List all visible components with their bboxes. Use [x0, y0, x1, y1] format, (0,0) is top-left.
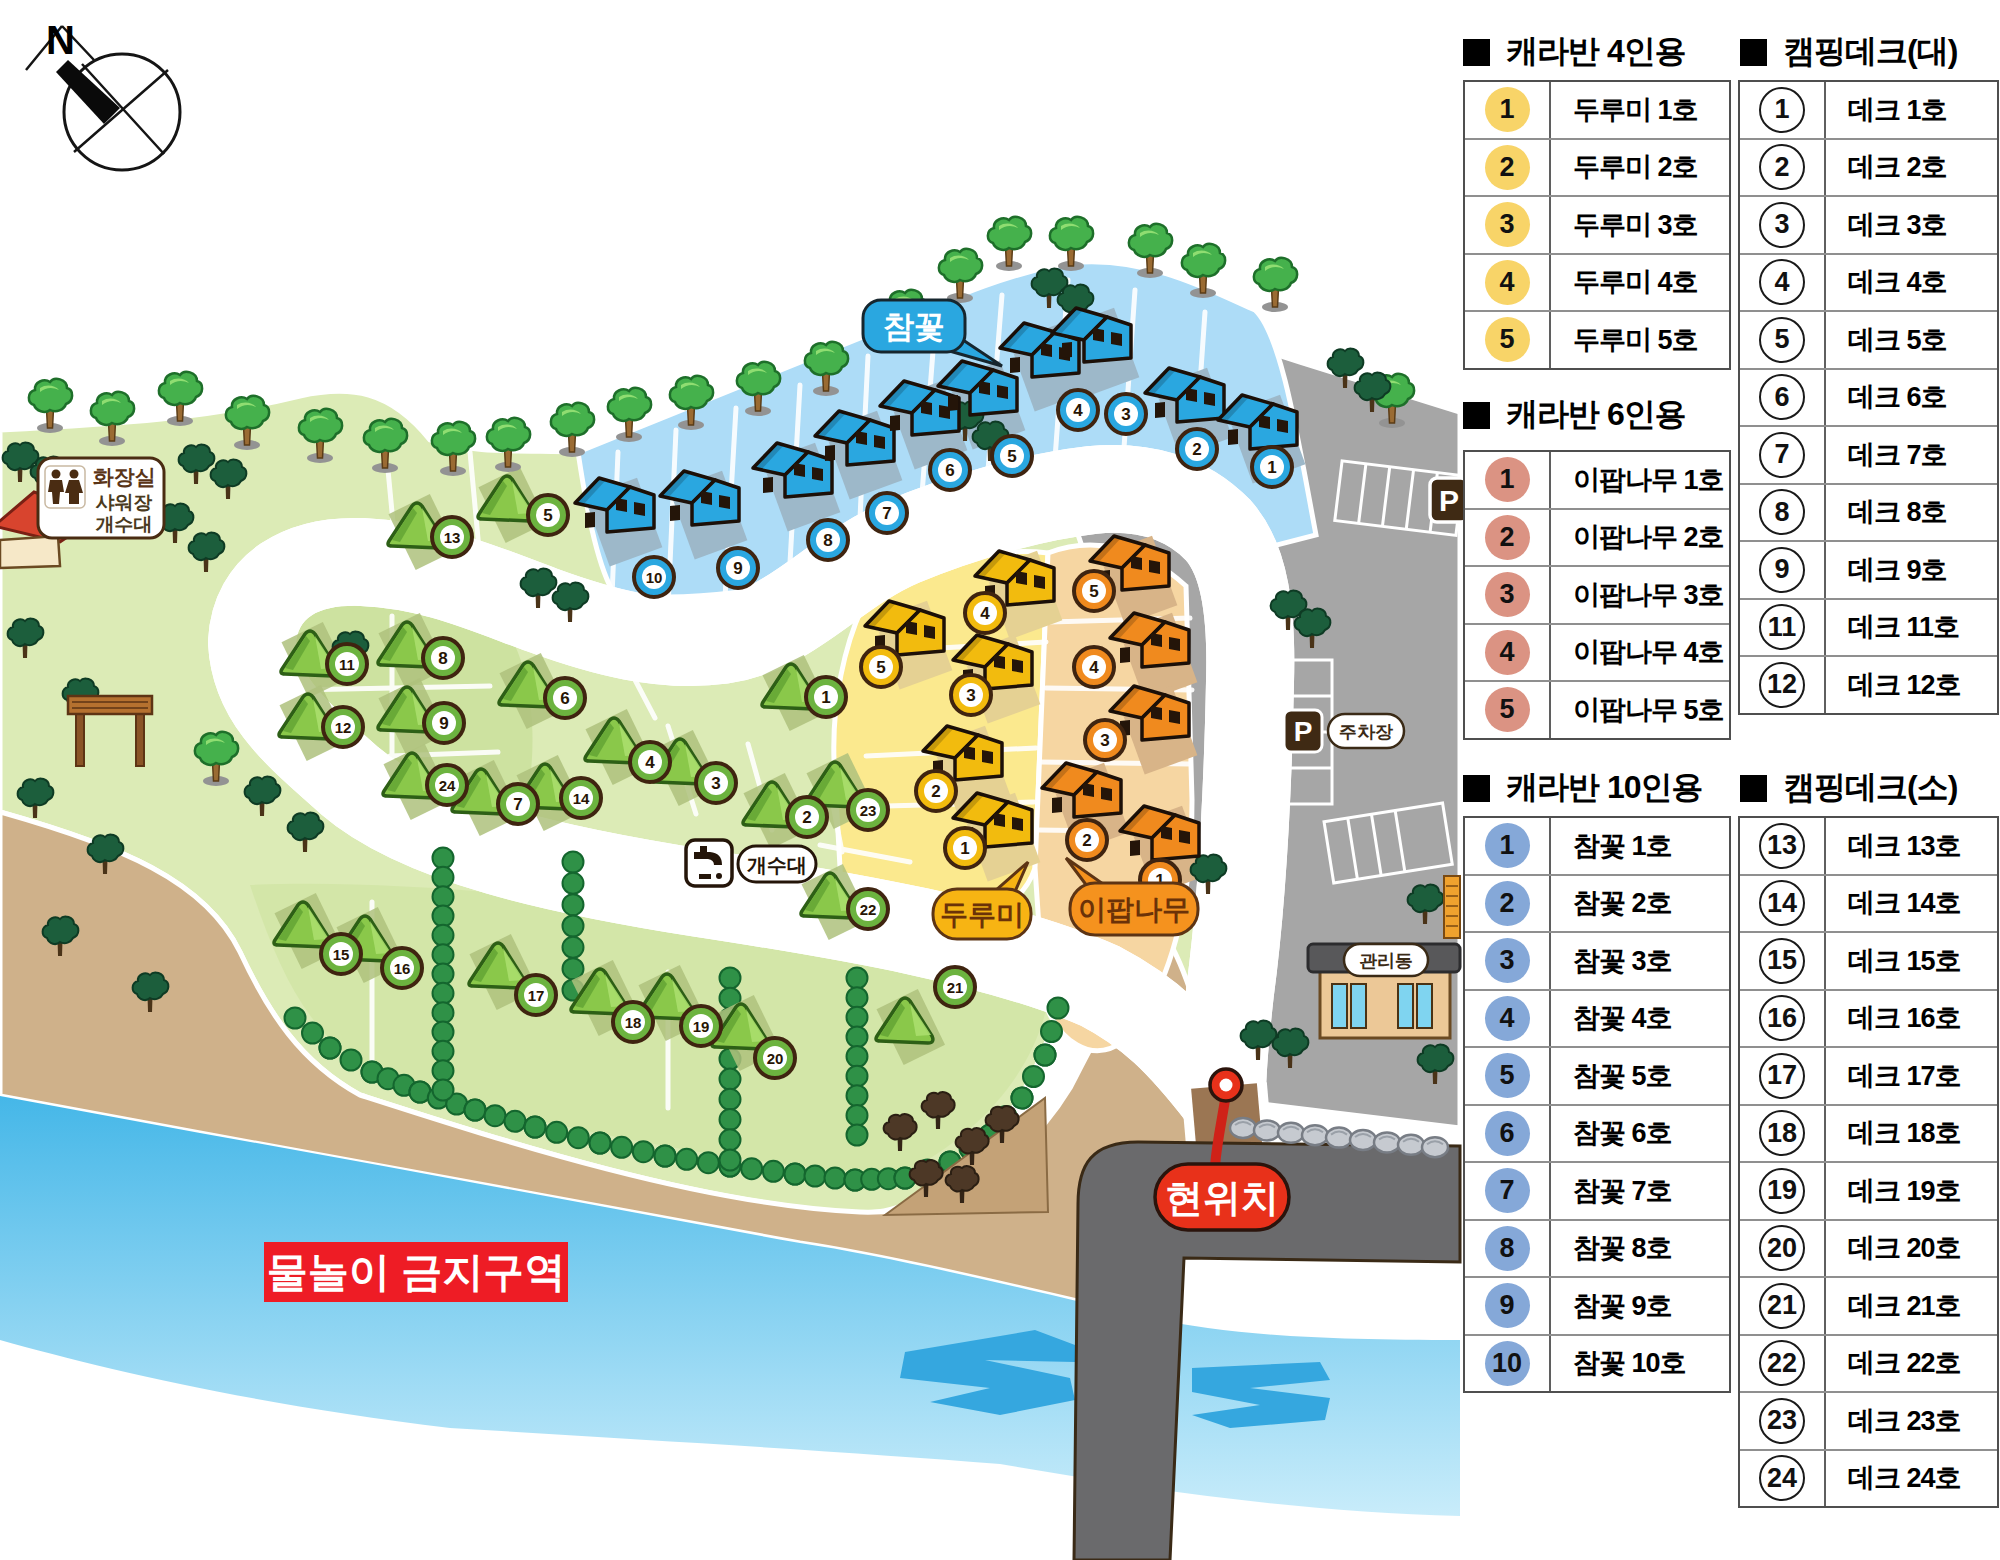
- site-marker-green-13: 13: [432, 517, 472, 557]
- hedge-bush-icon: [341, 1050, 362, 1071]
- hedge-bush-icon: [720, 1069, 741, 1090]
- site-marker-orange-3: 3: [1085, 720, 1125, 760]
- svg-text:9: 9: [439, 714, 448, 733]
- site-marker-green-22: 22: [848, 889, 888, 929]
- hedge-bush-icon: [805, 1166, 826, 1187]
- hedge-bush-icon: [720, 1089, 741, 1110]
- svg-text:4: 4: [1073, 401, 1083, 420]
- map-canvas: 화장실 샤워장 개수대 관리동: [0, 0, 2000, 1560]
- hedge-bush-icon: [847, 1007, 868, 1028]
- svg-text:18: 18: [625, 1014, 642, 1031]
- zone-label-yellow: 두루미: [940, 899, 1024, 930]
- compass-north-label: N: [46, 18, 75, 62]
- svg-text:21: 21: [947, 979, 964, 996]
- svg-text:22: 22: [860, 901, 877, 918]
- hedge-bush-icon: [763, 1161, 784, 1182]
- site-marker-orange-5: 5: [1074, 571, 1114, 611]
- svg-text:5: 5: [1007, 447, 1016, 466]
- site-marker-blue-5: 5: [992, 436, 1032, 476]
- rock-icon: [1326, 1128, 1352, 1148]
- no-swim-zone: 물놀이 금지구역: [264, 1242, 568, 1302]
- hedge-bush-icon: [1012, 1088, 1033, 1109]
- svg-text:12: 12: [335, 719, 352, 736]
- site-marker-green-4: 4: [630, 742, 670, 782]
- svg-text:20: 20: [767, 1050, 784, 1067]
- parking-p-icon: P: [1439, 484, 1459, 517]
- hedge-bush-icon: [590, 1133, 611, 1154]
- hedge-bush-icon: [847, 1125, 868, 1146]
- site-marker-green-16: 16: [382, 948, 422, 988]
- site-marker-green-2: 2: [787, 797, 827, 837]
- hedge-bush-icon: [676, 1149, 697, 1170]
- svg-text:7: 7: [513, 795, 522, 814]
- svg-text:1: 1: [960, 839, 969, 858]
- site-marker-green-21: 21: [935, 967, 975, 1007]
- site-marker-green-17: 17: [516, 975, 556, 1015]
- current-location-label: 현위치: [1165, 1177, 1279, 1219]
- svg-text:5: 5: [1089, 582, 1098, 601]
- site-marker-yellow-3: 3: [951, 675, 991, 715]
- hedge-bush-icon: [563, 937, 584, 958]
- hedge-bush-icon: [847, 1026, 868, 1047]
- site-marker-green-8: 8: [423, 638, 463, 678]
- site-marker-blue-10: 10: [634, 557, 674, 597]
- svg-text:2: 2: [931, 782, 940, 801]
- site-marker-green-14: 14: [561, 778, 601, 818]
- svg-text:2: 2: [802, 808, 811, 827]
- hedge-bush-icon: [433, 964, 454, 985]
- site-marker-green-18: 18: [613, 1002, 653, 1042]
- hedge-bush-icon: [563, 894, 584, 915]
- hedge-bush-icon: [825, 1168, 846, 1189]
- site-marker-yellow-5: 5: [861, 647, 901, 687]
- svg-text:8: 8: [438, 649, 447, 668]
- toilet-sign: 화장실 샤워장 개수대: [38, 458, 164, 538]
- hedge-bush-icon: [433, 1041, 454, 1062]
- hedge-bush-icon: [546, 1122, 567, 1143]
- parking-p-icon: P: [1294, 716, 1313, 747]
- svg-text:1: 1: [1267, 458, 1276, 477]
- site-marker-green-15: 15: [321, 934, 361, 974]
- site-marker-green-11: 11: [327, 644, 367, 684]
- svg-text:19: 19: [693, 1018, 710, 1035]
- hedge-bush-icon: [720, 968, 741, 989]
- rock-icon: [1398, 1135, 1424, 1155]
- hedge-bush-icon: [847, 968, 868, 989]
- svg-text:5: 5: [543, 506, 552, 525]
- tree-icon: [1254, 258, 1297, 312]
- hedge-bush-icon: [465, 1100, 486, 1121]
- svg-text:17: 17: [528, 987, 545, 1004]
- svg-text:16: 16: [394, 960, 411, 977]
- svg-text:3: 3: [711, 774, 720, 793]
- svg-text:4: 4: [645, 753, 655, 772]
- svg-text:11: 11: [339, 656, 355, 673]
- parking-label: 주차장: [1339, 722, 1393, 742]
- svg-text:4: 4: [980, 604, 990, 623]
- svg-text:13: 13: [444, 529, 461, 546]
- site-marker-green-1: 1: [806, 677, 846, 717]
- svg-text:8: 8: [823, 531, 832, 550]
- site-marker-orange-2: 2: [1067, 820, 1107, 860]
- campground-guide-map: 화장실 샤워장 개수대 관리동: [0, 0, 2000, 1560]
- hedge-bush-icon: [1041, 1021, 1062, 1042]
- hedge-bush-icon: [1023, 1066, 1044, 1087]
- rock-icon: [1254, 1120, 1280, 1140]
- hedge-bush-icon: [847, 1046, 868, 1067]
- hedge-bush-icon: [563, 852, 584, 873]
- hedge-bush-icon: [505, 1111, 526, 1132]
- site-marker-yellow-1: 1: [945, 828, 985, 868]
- svg-text:1: 1: [821, 688, 830, 707]
- hedge-bush-icon: [433, 1022, 454, 1043]
- hedge-bush-icon: [433, 983, 454, 1004]
- hedge-bush-icon: [433, 944, 454, 965]
- site-marker-yellow-4: 4: [965, 593, 1005, 633]
- hedge-bush-icon: [720, 1109, 741, 1130]
- svg-text:3: 3: [1121, 405, 1130, 424]
- hedge-bush-icon: [847, 1085, 868, 1106]
- parking-sign-small: P 주차장: [1284, 710, 1404, 752]
- hedge-bush-icon: [563, 916, 584, 937]
- hedge-bush-icon: [568, 1127, 589, 1148]
- hedge-bush-icon: [485, 1105, 506, 1126]
- sink-label: 개수대: [747, 854, 807, 876]
- svg-text:7: 7: [882, 504, 891, 523]
- hedge-bush-icon: [563, 873, 584, 894]
- rock-icon: [1422, 1137, 1448, 1157]
- site-marker-green-19: 19: [681, 1006, 721, 1046]
- svg-text:2: 2: [1192, 440, 1201, 459]
- hedge-bush-icon: [285, 1008, 306, 1029]
- site-marker-green-3: 3: [696, 763, 736, 803]
- sink-station: 개수대: [686, 840, 816, 886]
- svg-text:14: 14: [573, 790, 590, 807]
- site-marker-blue-3: 3: [1106, 394, 1146, 434]
- hedge-bush-icon: [655, 1146, 676, 1167]
- hedge-bush-icon: [847, 1066, 868, 1087]
- hedge-bush-icon: [433, 1060, 454, 1081]
- site-marker-blue-6: 6: [930, 450, 970, 490]
- site-marker-green-12: 12: [323, 707, 363, 747]
- svg-text:15: 15: [333, 946, 350, 963]
- tree-icon: [988, 217, 1031, 271]
- hedge-bush-icon: [698, 1152, 719, 1173]
- zone-label-orange: 이팝나무: [1078, 894, 1190, 925]
- site-marker-blue-4: 4: [1058, 390, 1098, 430]
- site-marker-blue-2: 2: [1177, 429, 1217, 469]
- hedge-bush-icon: [433, 886, 454, 907]
- site-marker-blue-8: 8: [808, 520, 848, 560]
- site-marker-green-7: 7: [498, 784, 538, 824]
- hedge-bush-icon: [433, 925, 454, 946]
- svg-text:9: 9: [733, 559, 742, 578]
- svg-text:4: 4: [1089, 658, 1099, 677]
- hedge-bush-icon: [433, 1002, 454, 1023]
- rock-icon: [1278, 1123, 1304, 1143]
- site-marker-green-20: 20: [755, 1038, 795, 1078]
- zone-label-blue: 참꽃: [883, 309, 945, 344]
- site-marker-green-23: 23: [848, 790, 888, 830]
- hedge-bush-icon: [785, 1164, 806, 1185]
- svg-text:24: 24: [439, 777, 456, 794]
- site-marker-green-9: 9: [424, 703, 464, 743]
- toilet-sign-line1: 화장실: [93, 465, 156, 488]
- hedge-bush-icon: [633, 1141, 654, 1162]
- hedge-bush-icon: [433, 867, 454, 888]
- management-label: 관리동: [1359, 951, 1413, 971]
- svg-text:2: 2: [1082, 831, 1091, 850]
- rock-icon: [1230, 1118, 1256, 1138]
- rock-icon: [1350, 1130, 1376, 1150]
- hedge-bush-icon: [320, 1038, 341, 1059]
- hedge-bush-icon: [525, 1117, 546, 1138]
- no-swim-zone-label: 물놀이 금지구역: [267, 1249, 565, 1295]
- site-marker-blue-7: 7: [867, 493, 907, 533]
- hedge-bush-icon: [433, 848, 454, 869]
- svg-text:23: 23: [860, 802, 877, 819]
- svg-text:6: 6: [560, 689, 569, 708]
- svg-text:3: 3: [1100, 731, 1109, 750]
- hedge-bush-icon: [741, 1158, 762, 1179]
- hedge-bush-icon: [847, 1105, 868, 1126]
- site-marker-blue-9: 9: [718, 548, 758, 588]
- toilet-sign-line2: 샤워장: [96, 492, 153, 513]
- rock-icon: [1302, 1125, 1328, 1145]
- hedge-bush-icon: [1048, 998, 1069, 1019]
- site-marker-blue-1: 1: [1252, 447, 1292, 487]
- svg-text:10: 10: [646, 569, 663, 586]
- compass: N: [26, 18, 180, 170]
- svg-text:3: 3: [966, 686, 975, 705]
- hedge-bush-icon: [433, 1080, 454, 1101]
- hedge-bush-icon: [611, 1137, 632, 1158]
- svg-text:6: 6: [945, 461, 954, 480]
- hedge-bush-icon: [302, 1023, 323, 1044]
- site-marker-green-24: 24: [427, 765, 467, 805]
- parking-sign-large: P: [1430, 478, 1468, 522]
- hedge-bush-icon: [433, 906, 454, 927]
- rock-icon: [1374, 1132, 1400, 1152]
- site-marker-green-5: 5: [528, 495, 568, 535]
- site-marker-yellow-2: 2: [916, 771, 956, 811]
- hedge-bush-icon: [1035, 1045, 1056, 1066]
- hedge-bush-icon: [720, 1150, 741, 1171]
- site-marker-green-6: 6: [545, 678, 585, 718]
- svg-text:5: 5: [876, 658, 885, 677]
- hedge-bush-icon: [847, 987, 868, 1008]
- toilet-sign-line3: 개수대: [96, 514, 153, 535]
- hedge-bush-icon: [720, 1129, 741, 1150]
- site-marker-orange-4: 4: [1074, 647, 1114, 687]
